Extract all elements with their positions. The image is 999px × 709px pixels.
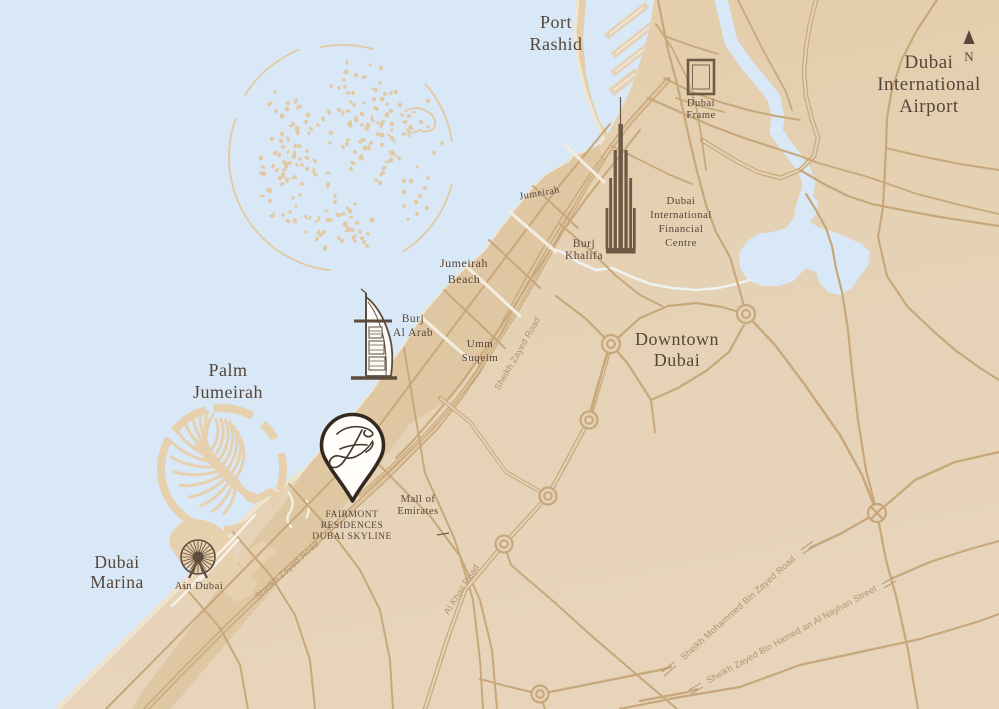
svg-text:Beach: Beach xyxy=(448,272,480,286)
svg-text:Burj: Burj xyxy=(402,313,424,325)
svg-text:Dubai: Dubai xyxy=(654,350,701,370)
svg-text:DUBAI SKYLINE: DUBAI SKYLINE xyxy=(312,532,392,542)
svg-text:Dubai: Dubai xyxy=(94,552,139,572)
svg-text:Khalifa: Khalifa xyxy=(565,250,603,262)
svg-text:Rashid: Rashid xyxy=(529,34,582,54)
svg-text:Al Arab: Al Arab xyxy=(393,327,433,339)
svg-text:Dubai: Dubai xyxy=(687,98,715,109)
svg-text:Mall of: Mall of xyxy=(401,494,436,505)
svg-text:Palm: Palm xyxy=(208,360,247,380)
svg-text:Marina: Marina xyxy=(90,572,144,592)
svg-text:International: International xyxy=(877,74,981,95)
svg-text:Centre: Centre xyxy=(665,237,697,249)
svg-text:Umm: Umm xyxy=(467,338,494,350)
svg-text:Dubai: Dubai xyxy=(905,52,954,73)
svg-text:Frame: Frame xyxy=(686,110,715,121)
svg-text:International: International xyxy=(650,209,712,221)
svg-text:Emirates: Emirates xyxy=(397,506,438,517)
svg-text:Jumeirah: Jumeirah xyxy=(440,256,488,270)
svg-text:Port: Port xyxy=(540,12,572,32)
svg-text:N: N xyxy=(964,49,974,64)
svg-text:Downtown: Downtown xyxy=(635,329,719,349)
svg-text:Burj: Burj xyxy=(573,238,595,250)
svg-text:FAIRMONT: FAIRMONT xyxy=(326,510,379,520)
svg-text:RESIDENCES: RESIDENCES xyxy=(321,521,384,531)
svg-text:Jumeirah: Jumeirah xyxy=(193,382,263,402)
svg-text:Dubai: Dubai xyxy=(667,195,696,207)
svg-text:Airport: Airport xyxy=(899,96,959,117)
svg-text:Suqeim: Suqeim xyxy=(462,352,499,364)
svg-text:Ain Dubai: Ain Dubai xyxy=(175,581,224,592)
svg-text:Financial: Financial xyxy=(659,223,704,235)
